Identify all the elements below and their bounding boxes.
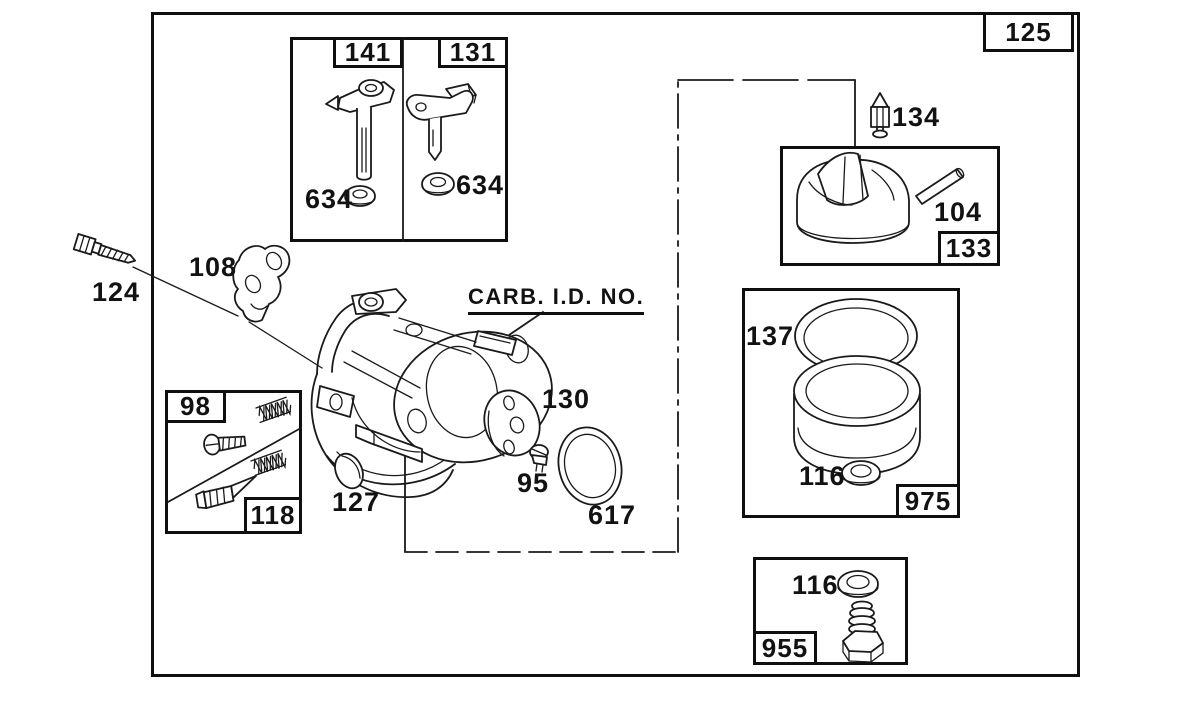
callout-141-text: 141 (345, 37, 391, 68)
label-116-nut: 116 (792, 570, 839, 601)
callout-955-text: 955 (762, 633, 808, 664)
label-134: 134 (892, 102, 940, 133)
diagram-line-art (0, 0, 1200, 710)
callout-box-975: 975 (896, 484, 960, 518)
callout-118-text: 118 (251, 500, 296, 531)
washer-116-nut (838, 571, 878, 597)
spring-upper (255, 397, 292, 423)
callout-box-98: 98 (165, 390, 226, 423)
callout-975-text: 975 (905, 486, 951, 517)
label-carb-id-no: CARB. I.D. NO. (468, 284, 644, 315)
control-bracket-108 (233, 246, 289, 322)
bowl-nut (843, 602, 883, 663)
callout-131-text: 131 (450, 37, 496, 68)
needle-valve-134 (871, 93, 889, 138)
label-617: 617 (588, 500, 636, 531)
label-124: 124 (92, 277, 140, 308)
callout-133-text: 133 (946, 233, 992, 264)
choke-shaft-131 (407, 84, 476, 160)
washer-116-bowl (842, 461, 880, 485)
label-634-right: 634 (456, 170, 504, 201)
float-bowl (794, 356, 920, 474)
label-127: 127 (332, 487, 380, 518)
o-ring-617 (550, 421, 629, 512)
assembly-boundary-lines (405, 80, 855, 552)
callout-98-text: 98 (180, 391, 211, 422)
label-95: 95 (517, 468, 549, 499)
label-634-left: 634 (305, 184, 353, 215)
callout-125-text: 125 (1005, 17, 1051, 48)
callout-box-133: 133 (938, 231, 1000, 266)
label-104: 104 (934, 197, 982, 228)
parts-diagram-page: { "colors": { "background": "#ffffff", "… (0, 0, 1200, 710)
callout-box-141: 141 (333, 37, 403, 68)
callout-box-118: 118 (244, 497, 302, 534)
mounting-screw-124 (74, 234, 138, 267)
float-104 (797, 153, 909, 243)
idle-screw (203, 431, 246, 456)
label-137: 137 (746, 321, 794, 352)
callout-box-955: 955 (753, 631, 817, 665)
label-130: 130 (542, 384, 590, 415)
washer-634-right (422, 173, 454, 195)
callout-box-125: 125 (983, 12, 1074, 52)
label-116-bowl: 116 (799, 461, 846, 492)
label-108: 108 (189, 252, 237, 283)
callout-box-131: 131 (438, 37, 508, 68)
